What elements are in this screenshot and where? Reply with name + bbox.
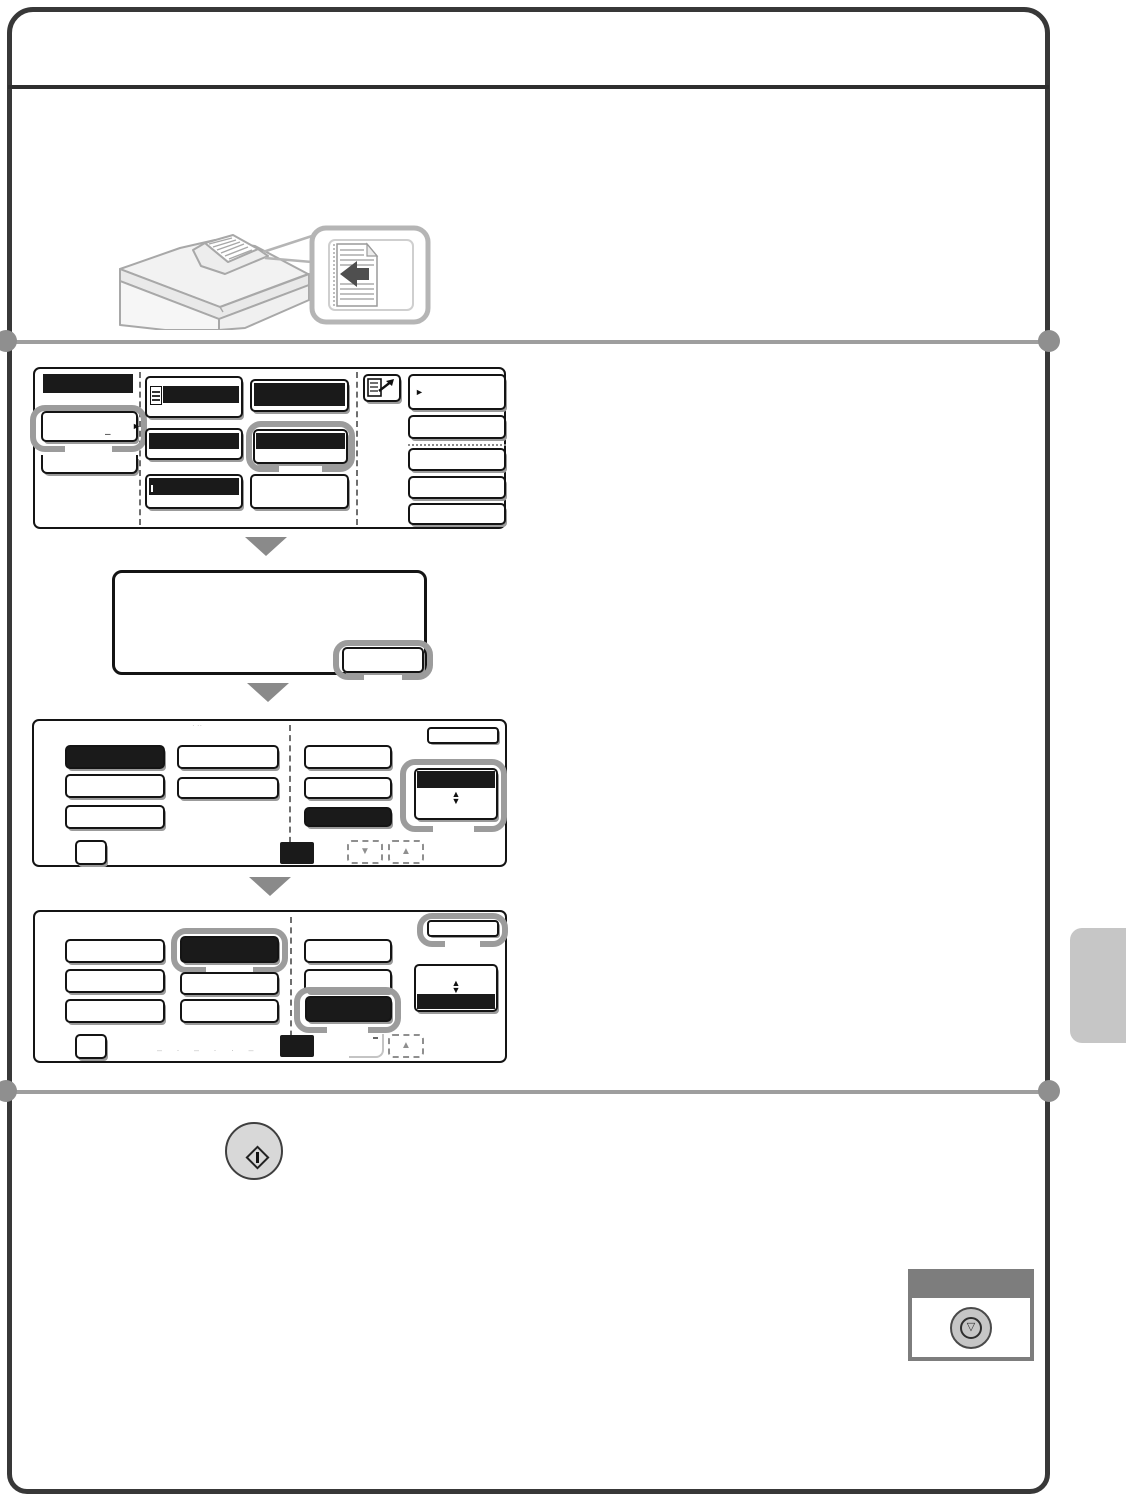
start-key[interactable] <box>225 1122 283 1180</box>
option-key[interactable] <box>65 805 165 829</box>
job-list-icon <box>150 386 162 405</box>
option-key[interactable] <box>65 939 165 963</box>
spinner-arrows-icon: ▲ ▼ <box>416 791 496 805</box>
selected-function-key[interactable] <box>253 429 348 464</box>
manual-page-stage: – ► <box>0 0 1126 1500</box>
special-modes-icon <box>366 377 398 399</box>
start-icon <box>249 1149 266 1166</box>
flow-down-arrow <box>247 683 289 702</box>
touch-key[interactable] <box>250 379 349 412</box>
panel-separator <box>356 372 358 525</box>
right-triangle-icon: ► <box>132 421 141 431</box>
selected-option-key[interactable] <box>304 807 392 827</box>
section-divider <box>8 1090 1049 1094</box>
touch-screen-1: – ► <box>33 367 506 529</box>
selected-tab-bar <box>43 374 133 393</box>
touch-screen-3: · ·· ▲ ▼ ▼ ▲ <box>32 719 507 867</box>
option-key[interactable] <box>180 972 279 995</box>
spinner-down-icon: ▼ <box>416 987 496 994</box>
back-key[interactable] <box>75 1034 107 1059</box>
list-key[interactable] <box>408 503 506 525</box>
faint-title-marks: · ·· <box>192 721 202 730</box>
up-triangle-icon: ▲ <box>401 846 411 857</box>
option-key[interactable] <box>65 774 165 798</box>
dialog-confirm-key[interactable] <box>342 647 424 673</box>
key-label-bar <box>256 433 345 449</box>
option-key[interactable] <box>304 777 392 799</box>
scroll-up-key[interactable]: ▲ <box>388 840 424 864</box>
value-spinner-key[interactable]: ▲ ▼ <box>414 964 498 1012</box>
spinner-down-icon: ▼ <box>416 798 496 805</box>
scroll-up-key[interactable]: ▲ <box>388 1034 424 1058</box>
up-triangle-icon: ▲ <box>401 1040 411 1051</box>
partial-key[interactable] <box>41 455 138 474</box>
option-key[interactable] <box>180 999 279 1023</box>
panel-separator <box>290 917 292 1047</box>
touch-key[interactable] <box>145 428 243 460</box>
list-key[interactable]: ► <box>408 374 506 410</box>
right-triangle-icon: ► <box>415 387 424 397</box>
touch-key[interactable] <box>145 474 243 509</box>
option-key[interactable] <box>304 939 392 963</box>
stop-key-panel: ▽ <box>908 1269 1034 1361</box>
list-key[interactable] <box>408 476 506 499</box>
spinner-value-bar <box>417 771 495 788</box>
selected-option-key[interactable] <box>180 936 279 963</box>
stop-panel-header <box>908 1269 1034 1298</box>
key-label-bar <box>163 386 239 403</box>
divider-bullet <box>1038 1080 1060 1102</box>
touch-key[interactable] <box>250 474 349 509</box>
touch-key[interactable] <box>145 376 243 418</box>
copier-feeder-illustration <box>105 222 435 330</box>
label-tick <box>151 485 153 492</box>
stop-icon: ▽ <box>960 1317 982 1339</box>
section-divider <box>8 340 1049 344</box>
header-rule <box>8 85 1049 89</box>
dash-mark: – <box>105 429 111 440</box>
message-dialog <box>112 570 427 675</box>
list-key[interactable] <box>408 448 506 471</box>
back-key[interactable] <box>75 840 107 865</box>
start-bar-icon <box>256 1152 259 1163</box>
list-key[interactable] <box>408 415 506 439</box>
selected-option-key[interactable] <box>65 745 165 769</box>
selected-option-key[interactable] <box>305 996 392 1022</box>
key-label-bar <box>149 478 239 495</box>
faded-mark <box>373 1037 378 1039</box>
spinner-value-bar <box>417 994 495 1009</box>
page-indicator-chip <box>280 842 314 864</box>
faint-footer-marks: – · – · · – <box>157 1045 297 1055</box>
page-indicator-chip <box>280 1035 314 1057</box>
panel-separator <box>289 725 291 853</box>
option-key[interactable] <box>65 969 165 993</box>
list-separator <box>408 444 506 446</box>
option-key[interactable] <box>177 777 279 799</box>
chapter-side-tab <box>1070 928 1126 1043</box>
stop-key[interactable]: ▽ <box>950 1307 992 1349</box>
option-key[interactable] <box>65 999 165 1023</box>
faded-scroll-down-key[interactable] <box>349 1034 384 1058</box>
special-modes-key[interactable] <box>363 374 401 402</box>
value-spinner-key[interactable]: ▲ ▼ <box>414 768 498 820</box>
spinner-arrows-icon: ▲ ▼ <box>416 980 496 994</box>
scroll-down-key[interactable]: ▼ <box>347 840 383 864</box>
option-key[interactable] <box>177 745 279 769</box>
divider-bullet <box>1038 330 1060 352</box>
touch-screen-4: ▲ ▼ – · – · · – ▲ <box>33 910 507 1063</box>
key-label-bar <box>149 433 239 449</box>
key-label-bar <box>254 383 345 406</box>
mode-select-key[interactable]: – ► <box>41 411 138 442</box>
stop-panel-body: ▽ <box>908 1298 1034 1361</box>
ok-key[interactable] <box>427 920 499 937</box>
flow-down-arrow <box>249 877 291 896</box>
flow-down-arrow <box>245 537 287 556</box>
down-triangle-icon: ▼ <box>360 846 370 857</box>
option-key[interactable] <box>304 745 392 769</box>
ok-key[interactable] <box>427 727 499 744</box>
